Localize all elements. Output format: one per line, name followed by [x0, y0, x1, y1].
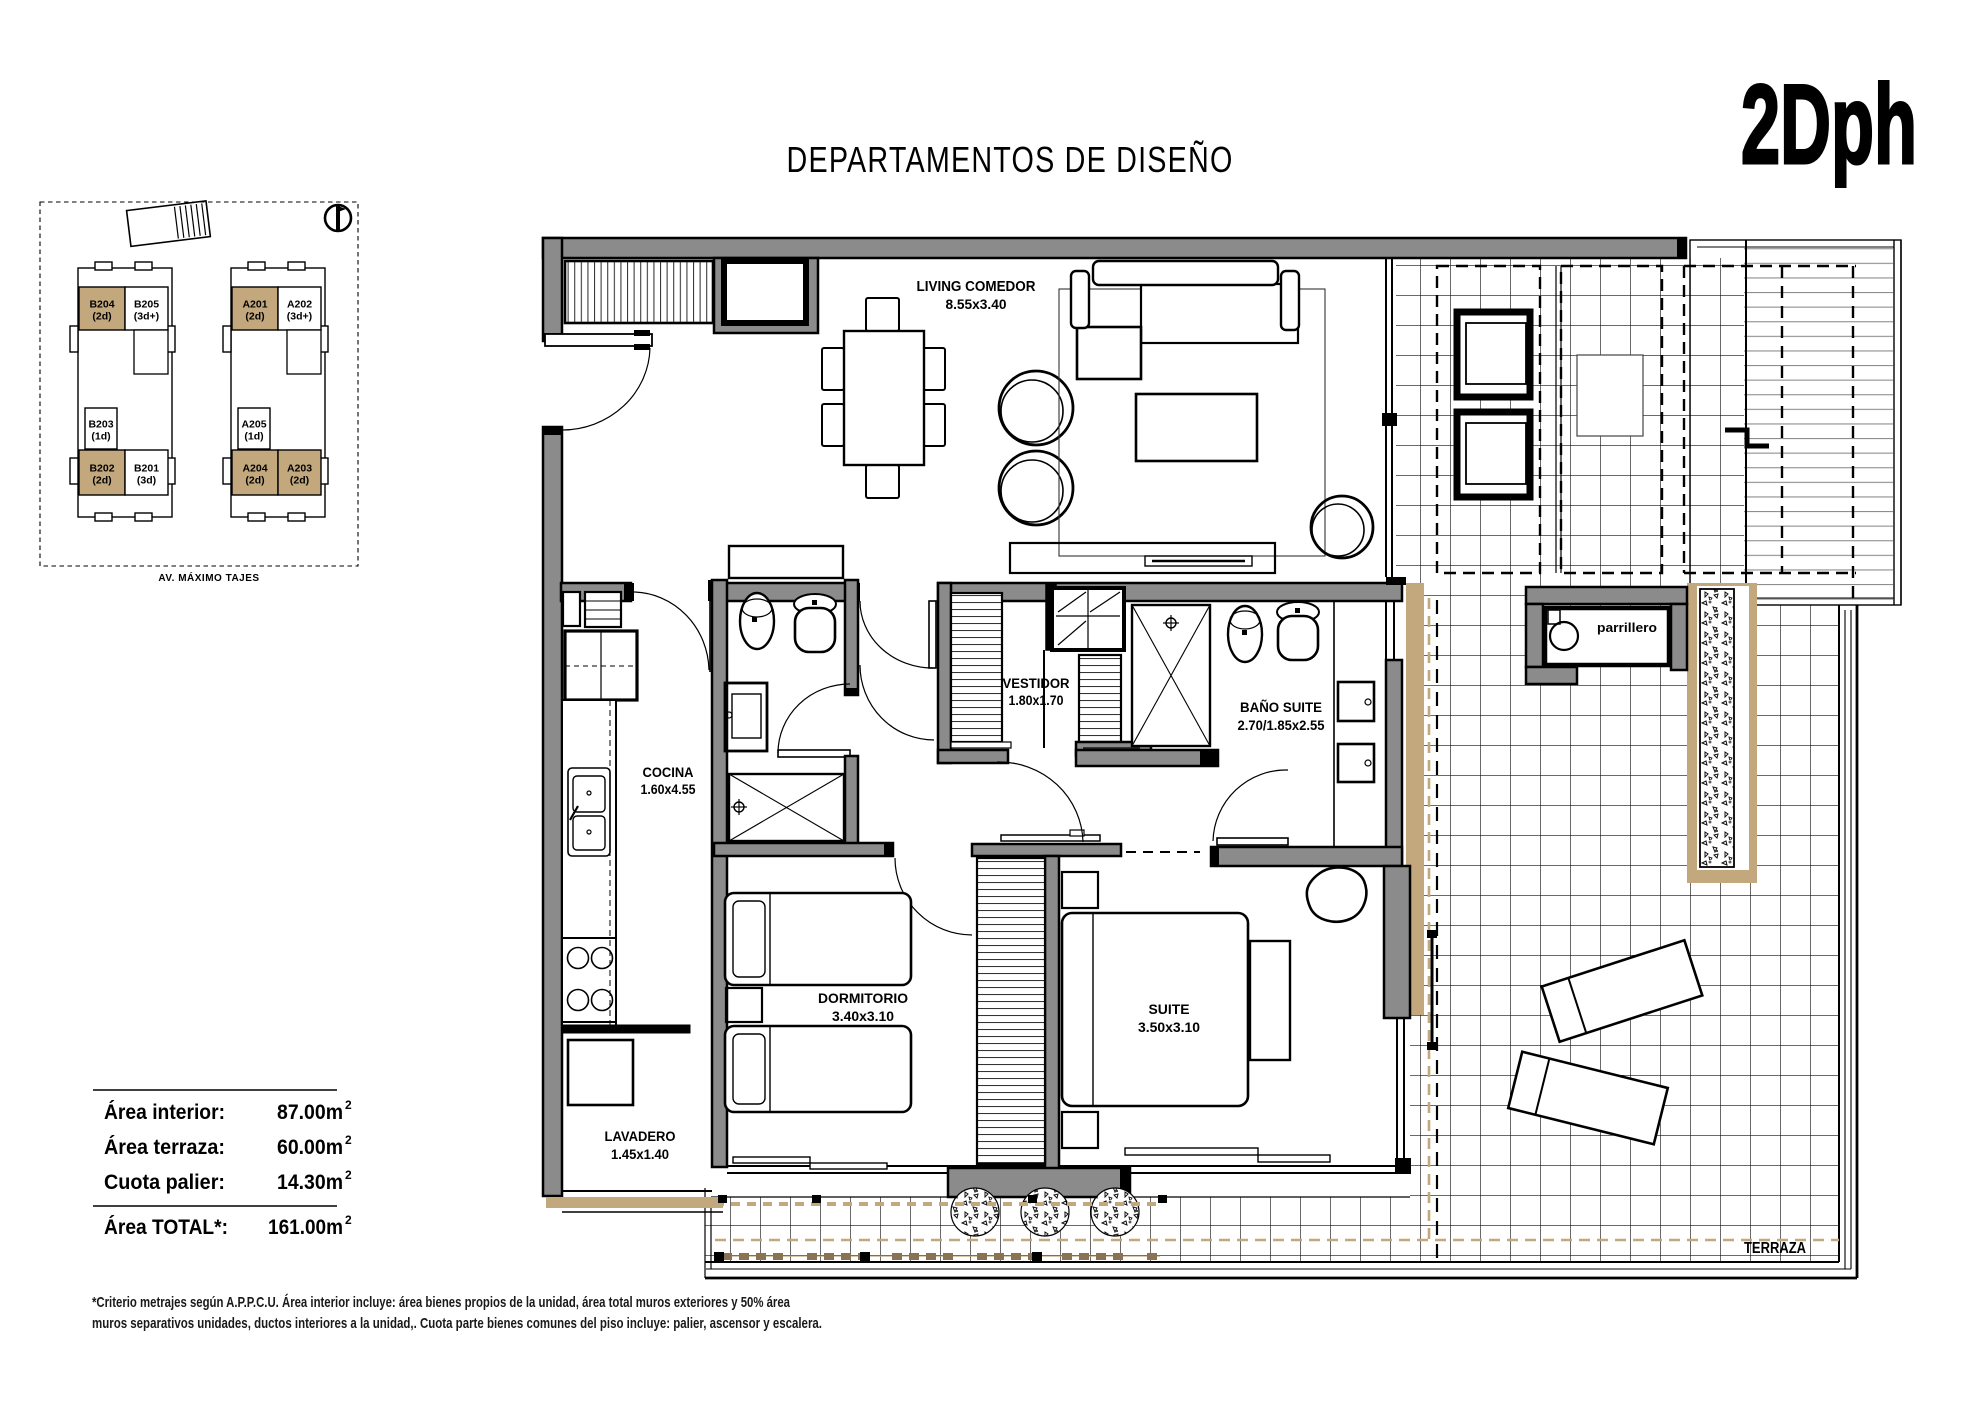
svg-text:1.60x4.55: 1.60x4.55 [641, 782, 696, 797]
svg-text:2: 2 [345, 1098, 352, 1112]
svg-text:A204: A204 [242, 463, 267, 475]
svg-text:14.30m: 14.30m [277, 1171, 343, 1194]
svg-text:(2d): (2d) [245, 475, 264, 487]
svg-text:(2d): (2d) [92, 475, 111, 487]
svg-text:A203: A203 [287, 463, 312, 475]
svg-text:87.00m: 87.00m [277, 1101, 343, 1124]
svg-text:3.40x3.10: 3.40x3.10 [832, 1009, 894, 1024]
svg-text:(1d): (1d) [244, 431, 263, 443]
svg-text:B205: B205 [134, 299, 159, 311]
svg-text:TERRAZA: TERRAZA [1744, 1240, 1806, 1257]
svg-text:B202: B202 [89, 463, 114, 475]
svg-text:B201: B201 [134, 463, 159, 475]
svg-text:BAÑO SUITE: BAÑO SUITE [1240, 698, 1322, 715]
svg-text:parrillero: parrillero [1597, 621, 1657, 635]
svg-text:2: 2 [345, 1133, 352, 1147]
svg-text:(2d): (2d) [245, 311, 264, 323]
svg-text:VESTIDOR: VESTIDOR [1003, 676, 1070, 691]
svg-text:3.50x3.10: 3.50x3.10 [1138, 1020, 1200, 1035]
svg-text:DEPARTAMENTOS DE DISEÑO: DEPARTAMENTOS DE DISEÑO [787, 139, 1234, 180]
svg-text:8.55x3.40: 8.55x3.40 [946, 297, 1007, 312]
svg-text:muros separativos unidades, du: muros separativos unidades, ductos inter… [92, 1315, 822, 1332]
svg-text:B204: B204 [89, 299, 114, 311]
svg-text:2Dph: 2Dph [1741, 62, 1917, 187]
svg-text:(3d+): (3d+) [134, 311, 159, 323]
svg-text:Área terraza:: Área terraza: [104, 1136, 225, 1159]
svg-text:Área TOTAL*:: Área TOTAL*: [104, 1216, 228, 1239]
svg-text:2: 2 [345, 1168, 352, 1182]
svg-text:Cuota palier:: Cuota palier: [104, 1171, 225, 1194]
svg-text:COCINA: COCINA [643, 765, 694, 780]
svg-text:A205: A205 [241, 419, 266, 431]
svg-text:*Criterio metrajes según A.P.P: *Criterio metrajes según A.P.P.C.U. Área… [92, 1294, 790, 1311]
svg-text:B203: B203 [88, 419, 113, 431]
svg-text:60.00m: 60.00m [277, 1136, 343, 1159]
svg-text:AV. MÁXIMO TAJES: AV. MÁXIMO TAJES [158, 571, 259, 584]
svg-text:LAVADERO: LAVADERO [605, 1129, 676, 1144]
svg-text:1.80x1.70: 1.80x1.70 [1009, 693, 1064, 708]
svg-text:(2d): (2d) [290, 475, 309, 487]
svg-text:Área interior:: Área interior: [104, 1101, 225, 1124]
svg-text:161.00m: 161.00m [268, 1216, 343, 1239]
svg-text:(2d): (2d) [92, 311, 111, 323]
svg-text:SUITE: SUITE [1149, 1002, 1190, 1017]
svg-text:DORMITORIO: DORMITORIO [818, 991, 908, 1006]
svg-text:A202: A202 [287, 299, 312, 311]
svg-text:(3d): (3d) [137, 475, 156, 487]
svg-text:2.70/1.85x2.55: 2.70/1.85x2.55 [1238, 718, 1325, 733]
svg-text:(1d): (1d) [91, 431, 110, 443]
svg-text:LIVING COMEDOR: LIVING COMEDOR [917, 279, 1036, 295]
svg-text:A201: A201 [242, 299, 267, 311]
svg-text:2: 2 [345, 1213, 352, 1227]
svg-text:(3d+): (3d+) [287, 311, 312, 323]
svg-text:1.45x1.40: 1.45x1.40 [611, 1147, 669, 1162]
